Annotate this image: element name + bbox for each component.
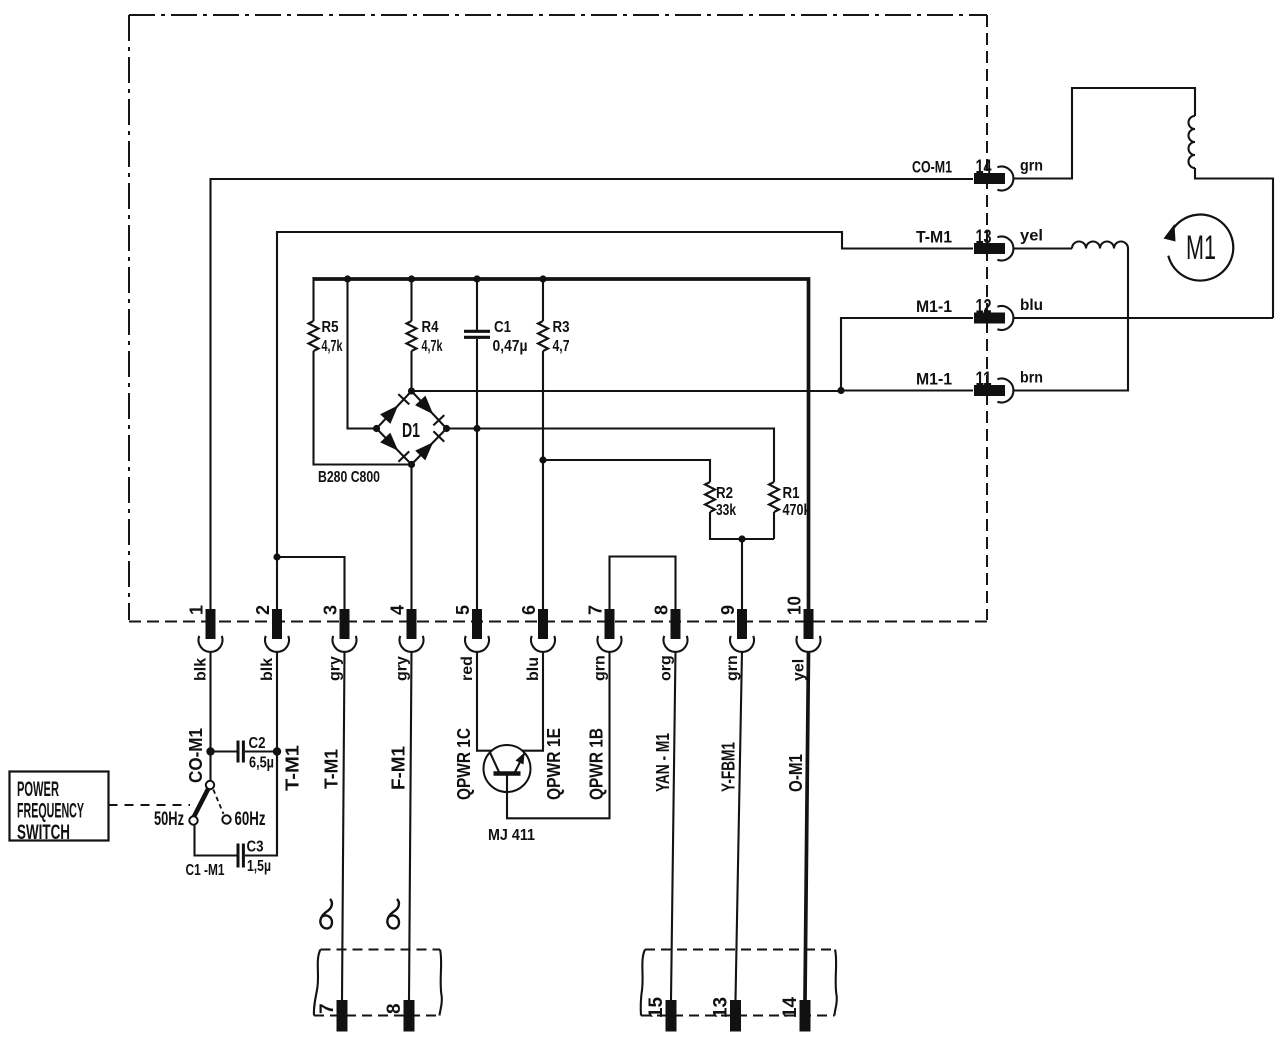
svg-text:15: 15 <box>646 997 667 1018</box>
svg-text:60Hz: 60Hz <box>235 809 266 830</box>
svg-text:MJ 411: MJ 411 <box>488 827 535 844</box>
svg-text:grn: grn <box>1020 158 1043 175</box>
svg-text:B280 C800: B280 C800 <box>318 469 380 486</box>
svg-text:5: 5 <box>453 605 473 615</box>
svg-text:33k: 33k <box>716 502 736 519</box>
svg-text:R1: R1 <box>783 485 800 502</box>
svg-text:blu: blu <box>525 657 542 681</box>
svg-text:4,7k: 4,7k <box>322 338 343 355</box>
svg-text:M1: M1 <box>1186 229 1216 267</box>
svg-text:QPWR 1C: QPWR 1C <box>454 728 474 800</box>
svg-text:R5: R5 <box>322 319 339 336</box>
svg-text:T-M1: T-M1 <box>283 745 303 791</box>
svg-text:R2: R2 <box>716 485 733 502</box>
svg-text:POWER: POWER <box>17 778 59 801</box>
svg-text:yel: yel <box>1020 228 1043 245</box>
svg-text:8: 8 <box>652 605 672 615</box>
svg-text:8: 8 <box>384 1003 405 1014</box>
svg-text:red: red <box>459 656 476 681</box>
svg-text:0,47µ: 0,47µ <box>493 338 528 355</box>
svg-text:O-M1: O-M1 <box>786 754 806 792</box>
svg-text:4: 4 <box>388 605 408 615</box>
svg-text:D1: D1 <box>402 420 420 442</box>
svg-text:14: 14 <box>780 997 801 1018</box>
svg-text:blu: blu <box>1020 297 1043 314</box>
svg-text:Y-FBM1: Y-FBM1 <box>719 742 739 792</box>
svg-text:10: 10 <box>785 596 805 615</box>
svg-text:6,5µ: 6,5µ <box>249 755 274 772</box>
svg-text:4,7: 4,7 <box>553 338 570 355</box>
svg-text:13: 13 <box>711 997 732 1018</box>
svg-text:gry: gry <box>394 656 411 681</box>
svg-text:7: 7 <box>317 1003 338 1014</box>
svg-text:13: 13 <box>976 227 992 248</box>
svg-text:F-M1: F-M1 <box>389 746 409 790</box>
svg-text:grn: grn <box>724 655 741 681</box>
svg-text:470k: 470k <box>783 502 811 519</box>
svg-text:6: 6 <box>519 605 539 615</box>
svg-text:grn: grn <box>592 655 609 681</box>
svg-text:R4: R4 <box>422 319 439 336</box>
svg-text:3: 3 <box>321 605 341 615</box>
svg-text:gry: gry <box>327 656 344 681</box>
svg-text:YAN - M1: YAN - M1 <box>653 733 673 792</box>
svg-text:FREQUENCY: FREQUENCY <box>17 800 84 823</box>
svg-text:QPWR 1B: QPWR 1B <box>587 728 607 800</box>
svg-text:org: org <box>658 655 675 681</box>
svg-text:SWITCH: SWITCH <box>17 821 70 844</box>
svg-text:2: 2 <box>253 605 273 615</box>
svg-text:C2: C2 <box>249 735 266 752</box>
svg-text:4,7k: 4,7k <box>422 338 443 355</box>
svg-text:brn: brn <box>1020 370 1043 387</box>
svg-text:14: 14 <box>976 157 992 178</box>
svg-text:9: 9 <box>718 605 738 615</box>
svg-text:T-M1: T-M1 <box>322 749 342 789</box>
svg-text:CO-M1: CO-M1 <box>186 728 206 783</box>
svg-text:11: 11 <box>976 369 992 390</box>
svg-text:C3: C3 <box>247 839 264 856</box>
svg-text:1: 1 <box>187 605 207 615</box>
svg-text:M1-1: M1-1 <box>916 370 952 389</box>
svg-text:blk: blk <box>259 658 276 681</box>
svg-text:yel: yel <box>791 659 808 681</box>
svg-text:12: 12 <box>976 297 992 318</box>
svg-text:C1 -M1: C1 -M1 <box>186 862 225 879</box>
svg-text:T-M1: T-M1 <box>916 228 952 247</box>
svg-text:50Hz: 50Hz <box>154 809 184 830</box>
svg-text:7: 7 <box>586 605 606 615</box>
svg-text:1,5µ: 1,5µ <box>247 858 271 875</box>
svg-text:blk: blk <box>193 658 210 681</box>
svg-text:QPWR 1E: QPWR 1E <box>544 728 564 800</box>
svg-text:R3: R3 <box>553 319 570 336</box>
svg-text:M1-1: M1-1 <box>916 297 952 316</box>
svg-text:C1: C1 <box>494 319 511 336</box>
svg-text:CO-M1: CO-M1 <box>912 158 952 177</box>
